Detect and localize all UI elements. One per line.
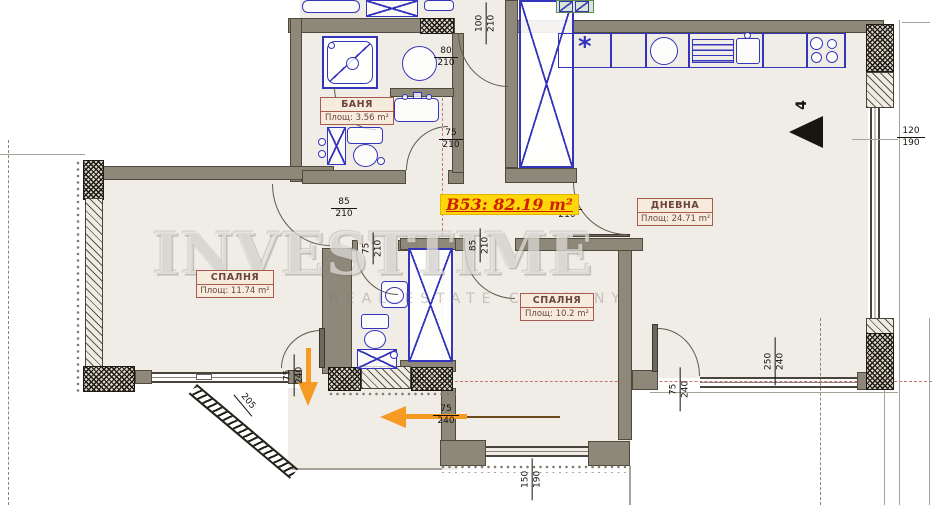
- counter-divider: [645, 33, 647, 68]
- tap-icon: [744, 32, 751, 39]
- dim-value: 120: [896, 126, 926, 136]
- dim-entrance-door: 75240: [432, 404, 460, 427]
- window-bedroom1: [152, 372, 288, 383]
- shower-drain-icon: [346, 57, 359, 70]
- dim-value: 190: [533, 457, 543, 501]
- hob-star-icon: *: [578, 34, 592, 60]
- valve-icon: [390, 351, 398, 359]
- dim-value: 210: [481, 227, 491, 263]
- facade-line-right2: [884, 390, 885, 505]
- wall-segment: [302, 170, 406, 184]
- dim-diagonal-wall: 205: [233, 387, 262, 418]
- room-label-bedroom2: СПАЛНЯ Площ: 10.2 m²: [520, 293, 594, 321]
- counter-divider: [762, 33, 764, 68]
- wall-segment: [440, 440, 486, 466]
- dim-value: 75: [669, 366, 679, 412]
- valve-icon: [318, 150, 326, 158]
- counter-divider: [688, 33, 690, 68]
- wall-segment: [85, 166, 334, 180]
- valve-icon: [318, 138, 326, 146]
- dim-bath-door: 75210: [438, 128, 464, 151]
- column-hatched: [328, 367, 361, 391]
- column-hatched: [83, 366, 135, 392]
- dim-value: 210: [330, 209, 358, 219]
- wall-hatched: [866, 72, 894, 108]
- shower-valve-icon: [328, 42, 335, 49]
- dim-entry-door: 100210: [475, 1, 498, 45]
- toilet-bowl-icon: [353, 144, 378, 167]
- dim-line: [852, 139, 898, 140]
- dim-value: 75: [283, 353, 293, 397]
- dim-value: 210: [433, 58, 459, 68]
- dim-bedroom2-door: 85210: [469, 227, 492, 263]
- dim-value: 75: [362, 231, 372, 265]
- dim-value: 240: [776, 336, 786, 386]
- tick-line: [902, 22, 930, 23]
- room-area: Площ: 10.2 m²: [521, 308, 593, 320]
- section-triangle-icon: [789, 116, 823, 148]
- wall-segment: [588, 441, 630, 466]
- window-handle: [196, 374, 212, 380]
- entrance-arrow-left-head-icon: [380, 406, 406, 428]
- neighbor-shaft-icon: [366, 0, 418, 17]
- sink-icon: [394, 98, 439, 122]
- burner-icon: [827, 39, 837, 49]
- dim-value: 250: [764, 336, 774, 386]
- dim-value: 85: [469, 227, 479, 263]
- column-hatched: [411, 367, 453, 391]
- wall-segment: [135, 370, 152, 384]
- wall-segment: [390, 88, 454, 97]
- burner-icon: [811, 52, 822, 63]
- room-area: Площ: 3.56 m²: [321, 112, 393, 124]
- dim-value: 190: [896, 138, 926, 148]
- tap-icon: [426, 94, 432, 100]
- wall-segment: [352, 240, 358, 251]
- neighbor-box-icon: [559, 1, 573, 12]
- insulation-strip: [328, 391, 456, 399]
- facade-line-right: [899, 20, 900, 505]
- window-south: [486, 446, 588, 457]
- dim-value: 85: [330, 197, 358, 207]
- terrace-edge-line: [292, 468, 442, 470]
- edge-line: [929, 318, 930, 505]
- neighbor-tub-icon: [302, 0, 360, 13]
- dim-bath-recess: 80210: [433, 46, 459, 69]
- dim-terrace-door: 75240: [283, 353, 306, 397]
- dim-wc-door: 75210: [362, 231, 385, 265]
- insulation-strip: [75, 160, 83, 392]
- wall-hatched: [866, 318, 894, 334]
- wall-segment: [322, 248, 352, 374]
- toilet-flush-icon: [377, 157, 385, 165]
- dim-south-window: 150190: [521, 457, 544, 501]
- entrance-arrow-down: [306, 348, 311, 384]
- reference-line: [0, 154, 85, 155]
- counter-divider: [610, 33, 612, 68]
- column-hatched: [420, 18, 454, 34]
- room-label-bedroom1: СПАЛНЯ Площ: 11.74 m²: [196, 270, 274, 298]
- unit-label: B53: 82.19 m²: [440, 194, 579, 215]
- drainboard-icon: [692, 39, 734, 63]
- room-name: ДНЕВНА: [638, 199, 712, 213]
- dim-value: 100: [475, 1, 485, 45]
- room-name: СПАЛНЯ: [521, 294, 593, 308]
- dim-value: 75: [438, 128, 464, 138]
- neighbor-box-icon: [575, 1, 589, 12]
- wall-segment: [505, 168, 577, 183]
- wall-segment: [455, 238, 465, 251]
- section-number: 4: [794, 100, 810, 110]
- shaft-icon: [519, 0, 574, 168]
- basin-round-icon: [402, 46, 437, 81]
- wall-segment: [632, 370, 658, 390]
- axis-line-balcony: [820, 318, 821, 505]
- tap-icon: [402, 94, 408, 100]
- wall-hatched: [361, 366, 411, 389]
- kitchen-sink-icon: [736, 38, 760, 64]
- dim-value: 240: [681, 366, 691, 412]
- room-name: БАНЯ: [321, 98, 393, 112]
- tap-icon: [413, 92, 422, 99]
- dim-bedroom1-door: 85210: [330, 197, 358, 220]
- wall-segment: [290, 18, 302, 182]
- burner-icon: [810, 37, 823, 50]
- column-hatched: [83, 160, 104, 200]
- axis-line-left: [8, 140, 9, 505]
- column-hatched: [866, 333, 894, 390]
- room-label-bath: БАНЯ Площ: 3.56 m²: [320, 97, 394, 125]
- floor-plan: * 4 INVESTTIME REAL ESTATE COMPANY 10021…: [0, 0, 932, 505]
- neighbor-fixture-icon: [424, 0, 454, 11]
- wc-toilet-tank-icon: [361, 314, 389, 329]
- dim-value: 210: [374, 231, 384, 265]
- column-hatched: [866, 24, 894, 72]
- dim-value: 75: [432, 404, 460, 414]
- dim-value: 210: [487, 1, 497, 45]
- burner-icon: [826, 51, 838, 63]
- door-leaf: [319, 328, 325, 368]
- wall-hatched: [85, 198, 103, 368]
- dim-value: 150: [521, 457, 531, 501]
- dim-balcony-window: 250240: [764, 336, 787, 386]
- dim-value: 80: [433, 46, 459, 56]
- appliance-round-icon: [650, 37, 678, 65]
- wc-toilet-bowl-icon: [364, 330, 386, 349]
- counter-divider: [572, 33, 574, 68]
- room-area: Площ: 11.74 m²: [197, 285, 273, 297]
- dim-value: 210: [438, 140, 464, 150]
- dim-right-window: 120190: [896, 126, 926, 149]
- shaft-icon: [408, 248, 453, 362]
- room-name: СПАЛНЯ: [197, 271, 273, 285]
- room-label-living: ДНЕВНА Площ: 24.71 m²: [637, 198, 713, 226]
- washer-icon: [327, 127, 346, 165]
- dim-balcony-door: 75240: [669, 366, 692, 412]
- dim-value: 240: [295, 353, 305, 397]
- toilet-tank-icon: [347, 127, 383, 144]
- room-area: Площ: 24.71 m²: [638, 213, 712, 225]
- dim-value: 240: [432, 416, 460, 426]
- wall-segment: [618, 250, 632, 440]
